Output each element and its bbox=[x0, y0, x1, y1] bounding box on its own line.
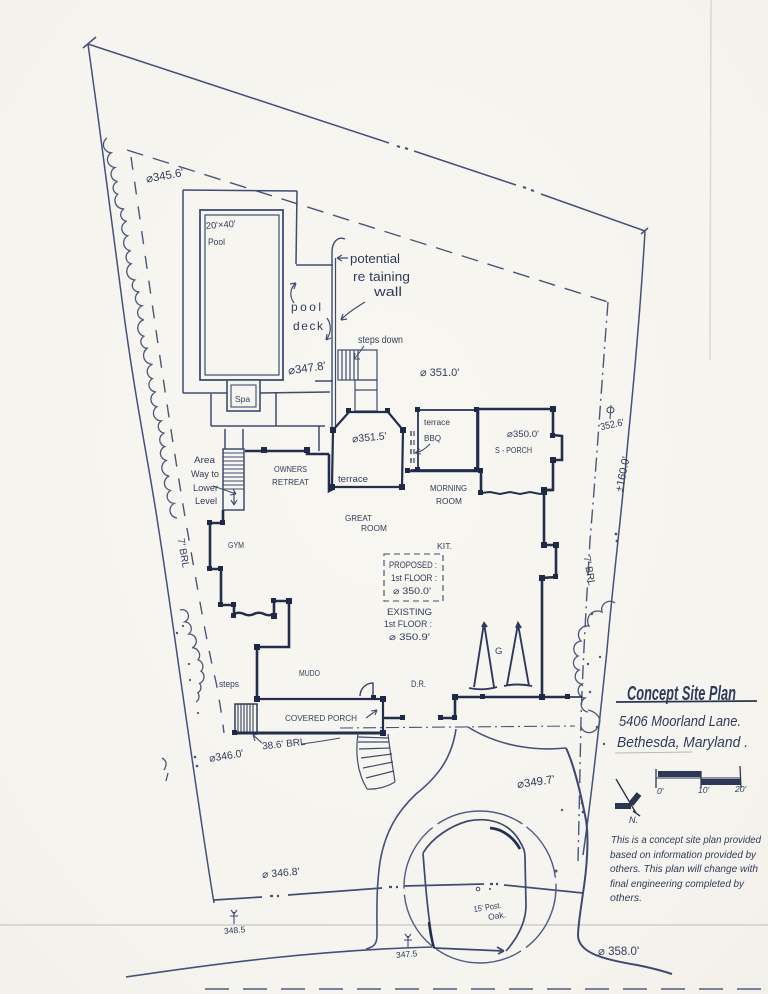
svg-text:deck: deck bbox=[293, 319, 325, 333]
svg-text:⌀ 351.0': ⌀ 351.0' bbox=[420, 367, 459, 379]
svg-text:⌀ 350.0': ⌀ 350.0' bbox=[393, 586, 431, 596]
svg-text:S - PORCH: S - PORCH bbox=[495, 445, 532, 455]
svg-text:terrace: terrace bbox=[338, 474, 368, 484]
svg-text:KIT.: KIT. bbox=[437, 541, 452, 551]
svg-text:⌀350.0': ⌀350.0' bbox=[507, 429, 539, 440]
svg-text:ROOM: ROOM bbox=[436, 496, 462, 506]
svg-text:G: G bbox=[495, 646, 502, 657]
svg-text:GREAT: GREAT bbox=[345, 513, 372, 523]
svg-text:⌀ 350.9': ⌀ 350.9' bbox=[389, 632, 430, 642]
svg-text:MORNING: MORNING bbox=[430, 483, 467, 493]
svg-text:ROOM: ROOM bbox=[361, 523, 387, 533]
svg-text:⌀ 358.0': ⌀ 358.0' bbox=[598, 946, 639, 958]
svg-text:0': 0' bbox=[657, 786, 664, 796]
svg-text:wall: wall bbox=[373, 285, 402, 299]
svg-text:final engineering completed by: final engineering completed by bbox=[610, 878, 745, 890]
svg-text:This is a concept site plan pr: This is a concept site plan provided bbox=[611, 834, 762, 846]
svg-text:Way to: Way to bbox=[191, 469, 219, 480]
svg-text:COVERED PORCH: COVERED PORCH bbox=[285, 713, 357, 723]
svg-text:20'×40': 20'×40' bbox=[205, 219, 236, 232]
svg-text:steps down: steps down bbox=[358, 334, 403, 346]
svg-text:terrace: terrace bbox=[424, 417, 450, 427]
svg-text:1st FLOOR :: 1st FLOOR : bbox=[391, 573, 437, 583]
svg-text:D.R.: D.R. bbox=[411, 679, 426, 689]
svg-text:348.5: 348.5 bbox=[224, 924, 246, 936]
svg-text:N.: N. bbox=[629, 815, 638, 825]
svg-text:Pool: Pool bbox=[208, 237, 225, 248]
svg-text:others.: others. bbox=[610, 892, 642, 904]
svg-text:EXISTING: EXISTING bbox=[387, 607, 432, 617]
svg-text:based on information provided: based on information provided by bbox=[610, 849, 757, 861]
svg-text:MUDO: MUDO bbox=[299, 668, 320, 678]
svg-text:OWNERS: OWNERS bbox=[274, 464, 307, 474]
svg-text:potential: potential bbox=[350, 252, 400, 266]
svg-text:steps: steps bbox=[219, 679, 239, 690]
svg-text:20': 20' bbox=[734, 784, 746, 794]
svg-text:pool: pool bbox=[291, 300, 323, 314]
svg-text:others. This plan will change: others. This plan will change with bbox=[610, 863, 758, 875]
svg-text:Area: Area bbox=[194, 455, 216, 466]
svg-text:1st FLOOR :: 1st FLOOR : bbox=[384, 619, 432, 629]
svg-text:10': 10' bbox=[698, 785, 709, 795]
svg-text:Spa: Spa bbox=[235, 394, 250, 404]
svg-text:347.5: 347.5 bbox=[396, 948, 418, 960]
svg-text:Bethesda, Maryland .: Bethesda, Maryland . bbox=[617, 734, 748, 751]
svg-text:PROPOSED :: PROPOSED : bbox=[389, 560, 437, 570]
svg-text:5406 Moorland Lane.: 5406 Moorland Lane. bbox=[619, 713, 741, 730]
svg-text:RETREAT: RETREAT bbox=[272, 477, 309, 487]
svg-text:GYM: GYM bbox=[228, 540, 244, 550]
svg-text:Level: Level bbox=[195, 496, 217, 507]
svg-text:Lower: Lower bbox=[193, 483, 218, 494]
svg-text:re taining: re taining bbox=[353, 270, 410, 284]
svg-text:BBQ: BBQ bbox=[424, 433, 441, 443]
